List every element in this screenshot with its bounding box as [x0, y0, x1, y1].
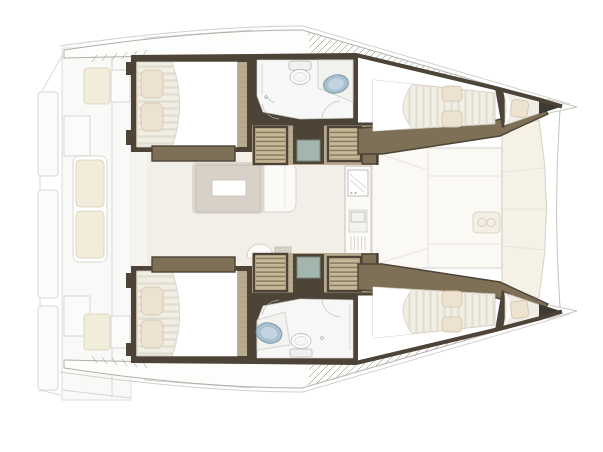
bench-cushion: [76, 211, 104, 258]
pillow: [442, 317, 462, 332]
saloon: [131, 150, 378, 268]
helm-step: [64, 116, 90, 156]
toilet-seat: [294, 73, 307, 82]
hull-bottom: [60, 253, 570, 392]
pillow: [141, 70, 163, 98]
pillow: [510, 300, 529, 319]
bow-crossbeam-curve: [557, 110, 561, 308]
aft-cabin-bottom: [126, 257, 252, 361]
catamaran-floor-plan: [0, 0, 603, 452]
galley: [345, 166, 371, 262]
saloon-sofa: [264, 162, 296, 212]
bed-sheet: [172, 271, 237, 356]
window-tab: [126, 273, 132, 288]
cabin-cabinet: [152, 146, 235, 161]
window-tab: [126, 62, 132, 75]
chart-seat-top: [297, 140, 320, 161]
hull-top: [60, 26, 570, 165]
bench-cushion: [76, 160, 104, 207]
window-tab: [126, 343, 132, 356]
stove-knob: [354, 192, 356, 194]
floor-plan-canvas: [0, 0, 603, 452]
stair-treads: [256, 129, 285, 162]
swim-platform-step: [38, 190, 58, 298]
stair-treads: [256, 256, 285, 289]
forward-cockpit-panel: [372, 148, 502, 268]
aft-cabin-top: [126, 57, 252, 161]
dining-table-top: [212, 180, 246, 196]
pillow: [141, 320, 163, 348]
pillow: [141, 287, 163, 315]
cabin-cabinet: [152, 257, 235, 272]
pillow: [442, 291, 462, 307]
corner-cushion: [84, 314, 110, 350]
stove-knob: [350, 192, 352, 194]
bed-sheet: [172, 62, 237, 147]
pillow: [442, 86, 462, 101]
galley-sink: [349, 210, 367, 232]
pillow: [510, 99, 529, 118]
swim-platform-step: [38, 92, 58, 176]
pillow: [442, 111, 462, 127]
cockpit-door-threshold: [131, 150, 147, 268]
toilet-tank: [290, 349, 312, 357]
toilet-seat: [295, 337, 308, 346]
corner-cushion: [84, 68, 110, 104]
toilet-tank: [289, 61, 311, 70]
chart-seat-top: [297, 257, 320, 278]
window-tab: [126, 130, 132, 145]
stair-treads: [330, 259, 359, 289]
bathroom-bottom: [252, 294, 358, 363]
swim-platform-step: [38, 306, 58, 390]
bathroom-top: [252, 55, 358, 124]
pillow: [141, 103, 163, 131]
stair-treads: [330, 129, 359, 159]
